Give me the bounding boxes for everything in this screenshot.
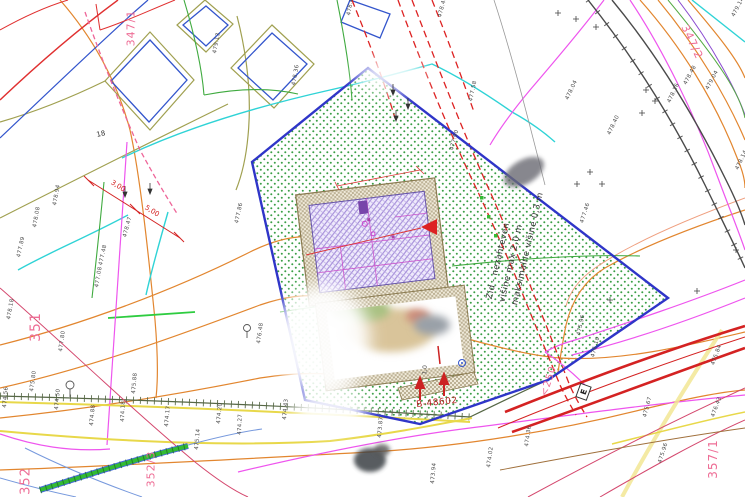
map-canvas [0, 0, 745, 497]
site-plan-map: Zid - nezahteven višine max 2,0 m maksim… [0, 0, 745, 497]
manhole-center [461, 362, 463, 364]
parcel-label-357-1: 357/1 [706, 439, 720, 479]
parcel-label-351: 351 [28, 312, 44, 342]
parcel-label-352: 352 [19, 467, 34, 495]
parcel-label-352-3: 352/3 [145, 451, 158, 488]
right-edge-green [668, 0, 745, 118]
elevation-label: 474.27 [237, 414, 244, 435]
dimension-1m: 1,0 [421, 365, 429, 375]
elevation-label: 474.18 [120, 401, 127, 422]
parcel-label-347-1: 347/1 [125, 10, 138, 47]
green-bright-line [108, 312, 195, 318]
tree-symbols [66, 325, 251, 398]
